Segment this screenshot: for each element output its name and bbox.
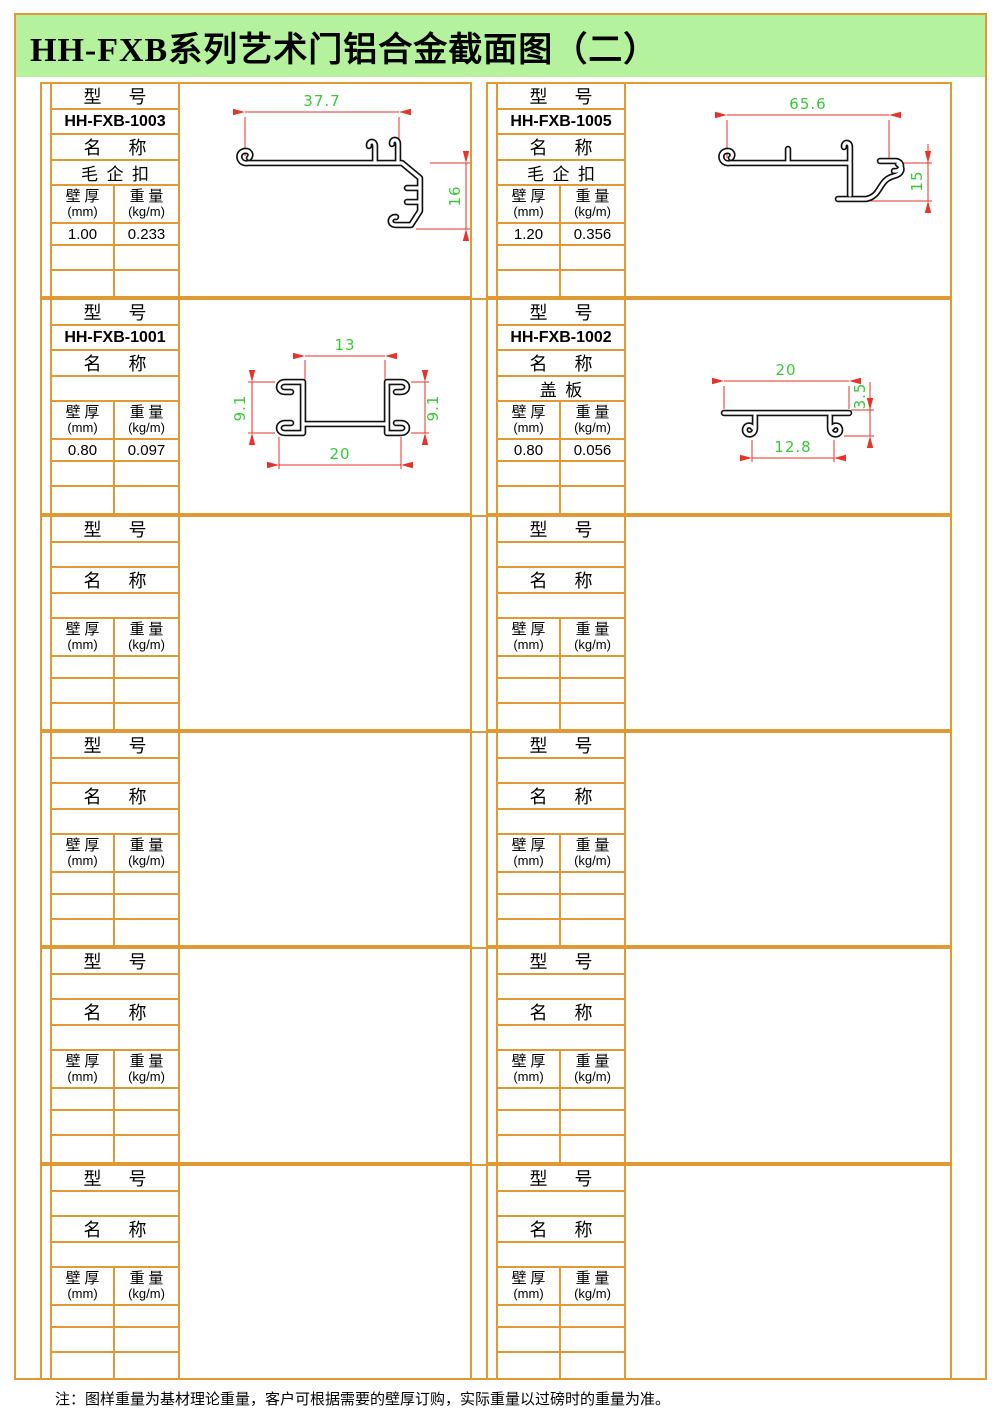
empty-row [498, 1111, 624, 1136]
values-row: 1.00 0.233 [52, 224, 178, 246]
units-header-row: 壁 厚(mm) 重 量(kg/m) [52, 1268, 178, 1306]
drawing-sheet: HH-FXB系列艺术门铝合金截面图（二） 型 号 HH-FXB-1003 名 称… [0, 0, 1000, 1415]
weight-header: 重 量(kg/m) [561, 402, 624, 438]
dim-width-label: 37.7 [303, 92, 340, 110]
weight-value [561, 1089, 624, 1109]
profile-cell-hh-fxb-1003: 型 号 HH-FXB-1003 名 称 毛 企 扣 壁 厚(mm) 重 量(kg… [40, 82, 472, 298]
values-row [498, 657, 624, 679]
weight-header: 重 量(kg/m) [115, 619, 178, 655]
spec-table: 型 号 名 称 壁 厚(mm) 重 量(kg/m) [50, 1166, 180, 1378]
thickness-value: 0.80 [52, 440, 115, 460]
dim-left-label: 9.1 [231, 395, 249, 422]
name-value [498, 1243, 624, 1268]
model-value: HH-FXB-1003 [52, 110, 178, 135]
profile-cell-empty: 型 号 名 称 壁 厚(mm) 重 量(kg/m) [486, 1164, 952, 1380]
name-label: 名 称 [52, 568, 178, 594]
thickness-header: 壁 厚(mm) [52, 1268, 115, 1304]
name-label: 名 称 [52, 784, 178, 810]
weight-value: 0.097 [115, 440, 178, 460]
values-row: 0.80 0.097 [52, 440, 178, 462]
thickness-header: 壁 厚(mm) [52, 402, 115, 438]
spec-table: 型 号 名 称 壁 厚(mm) 重 量(kg/m) [50, 733, 180, 945]
empty-row [52, 895, 178, 920]
thickness-header: 壁 厚(mm) [498, 835, 561, 871]
thickness-value: 0.80 [498, 440, 561, 460]
spec-table: 型 号 名 称 壁 厚(mm) 重 量(kg/m) [50, 949, 180, 1162]
spec-table: 型 号 HH-FXB-1003 名 称 毛 企 扣 壁 厚(mm) 重 量(kg… [50, 84, 180, 296]
model-label: 型 号 [52, 84, 178, 110]
name-value: 盖 板 [498, 377, 624, 402]
model-value [52, 543, 178, 568]
empty-row [52, 462, 178, 487]
profile-cell-empty: 型 号 名 称 壁 厚(mm) 重 量(kg/m) [486, 515, 952, 731]
empty-row [498, 679, 624, 704]
dim-height-label: 16 [446, 185, 464, 206]
dim-top-label: 20 [775, 361, 796, 379]
values-row [498, 873, 624, 895]
weight-header: 重 量(kg/m) [561, 835, 624, 871]
thickness-value [52, 873, 115, 893]
name-value [498, 594, 624, 619]
empty-row [52, 246, 178, 271]
dim-width-label: 65.6 [789, 95, 826, 113]
name-value: 毛 企 扣 [498, 161, 624, 186]
profile-cell-empty: 型 号 名 称 壁 厚(mm) 重 量(kg/m) [40, 947, 472, 1164]
empty-row [498, 462, 624, 487]
weight-value: 0.356 [561, 224, 624, 244]
empty-row [52, 487, 178, 513]
profile-drawing-hh-fxb-1003: 37.7 16 [182, 84, 472, 296]
empty-row [498, 246, 624, 271]
thickness-value [52, 1306, 115, 1326]
empty-row [52, 1136, 178, 1162]
name-label: 名 称 [498, 351, 624, 377]
thickness-header: 壁 厚(mm) [52, 619, 115, 655]
units-header-row: 壁 厚(mm) 重 量(kg/m) [498, 186, 624, 224]
values-row: 0.80 0.056 [498, 440, 624, 462]
empty-row [52, 920, 178, 945]
empty-row [52, 271, 178, 296]
model-value: HH-FXB-1005 [498, 110, 624, 135]
weight-header: 重 量(kg/m) [115, 1268, 178, 1304]
name-label: 名 称 [52, 1000, 178, 1026]
model-label: 型 号 [498, 517, 624, 543]
dim-bottom-label: 20 [329, 445, 350, 463]
weight-value: 0.056 [561, 440, 624, 460]
weight-header: 重 量(kg/m) [115, 186, 178, 222]
weight-header: 重 量(kg/m) [115, 1051, 178, 1087]
units-header-row: 壁 厚(mm) 重 量(kg/m) [498, 1051, 624, 1089]
units-header-row: 壁 厚(mm) 重 量(kg/m) [52, 402, 178, 440]
profile-cell-empty: 型 号 名 称 壁 厚(mm) 重 量(kg/m) [40, 1164, 472, 1380]
thickness-value: 1.00 [52, 224, 115, 244]
empty-row [498, 1353, 624, 1378]
thickness-header: 壁 厚(mm) [52, 1051, 115, 1087]
weight-value [561, 1306, 624, 1326]
profile-cell-hh-fxb-1001: 型 号 HH-FXB-1001 名 称 壁 厚(mm) 重 量(kg/m) 0.… [40, 298, 472, 515]
model-value: HH-FXB-1001 [52, 326, 178, 351]
model-value: HH-FXB-1002 [498, 326, 624, 351]
name-label: 名 称 [498, 1000, 624, 1026]
model-value [52, 975, 178, 1000]
name-value [52, 594, 178, 619]
weight-header: 重 量(kg/m) [115, 402, 178, 438]
model-label: 型 号 [498, 949, 624, 975]
name-value [52, 1026, 178, 1051]
empty-row [52, 1111, 178, 1136]
name-label: 名 称 [498, 135, 624, 161]
values-row: 1.20 0.356 [498, 224, 624, 246]
empty-row [52, 704, 178, 729]
thickness-header: 壁 厚(mm) [52, 835, 115, 871]
weight-value: 0.233 [115, 224, 178, 244]
name-value: 毛 企 扣 [52, 161, 178, 186]
thickness-value [498, 873, 561, 893]
profile-cell-hh-fxb-1005: 型 号 HH-FXB-1005 名 称 毛 企 扣 壁 厚(mm) 重 量(kg… [486, 82, 952, 298]
model-value [498, 975, 624, 1000]
weight-value [115, 1306, 178, 1326]
footnote: 注：图样重量为基材理论重量，客户可根据需要的壁厚订购，实际重量以过磅时的重量为准… [55, 1388, 670, 1409]
name-value [498, 1026, 624, 1051]
values-row [498, 1306, 624, 1328]
name-label: 名 称 [52, 1217, 178, 1243]
empty-row [498, 920, 624, 945]
profile-cell-empty: 型 号 名 称 壁 厚(mm) 重 量(kg/m) [486, 731, 952, 947]
name-value [498, 810, 624, 835]
empty-row [498, 895, 624, 920]
profile-drawing-hh-fxb-1002: 20 12.8 3.5 [628, 300, 952, 513]
weight-header: 重 量(kg/m) [561, 1051, 624, 1087]
profile-drawing-hh-fxb-1001: 13 20 9.1 9.1 [182, 300, 472, 513]
spec-table: 型 号 名 称 壁 厚(mm) 重 量(kg/m) [496, 1166, 626, 1378]
profile-cell-empty: 型 号 名 称 壁 厚(mm) 重 量(kg/m) [40, 515, 472, 731]
model-value [498, 543, 624, 568]
name-value [52, 810, 178, 835]
model-label: 型 号 [498, 1166, 624, 1192]
thickness-header: 壁 厚(mm) [498, 619, 561, 655]
model-label: 型 号 [52, 517, 178, 543]
empty-row [498, 704, 624, 729]
empty-row [52, 679, 178, 704]
model-value [52, 1192, 178, 1217]
units-header-row: 壁 厚(mm) 重 量(kg/m) [498, 1268, 624, 1306]
thickness-value [52, 657, 115, 677]
weight-value [561, 873, 624, 893]
dim-height-label: 15 [908, 170, 926, 191]
units-header-row: 壁 厚(mm) 重 量(kg/m) [52, 835, 178, 873]
spec-table: 型 号 名 称 壁 厚(mm) 重 量(kg/m) [496, 949, 626, 1162]
weight-value [561, 657, 624, 677]
spec-table: 型 号 HH-FXB-1005 名 称 毛 企 扣 壁 厚(mm) 重 量(kg… [496, 84, 626, 296]
name-value [52, 1243, 178, 1268]
name-label: 名 称 [498, 1217, 624, 1243]
name-label: 名 称 [498, 784, 624, 810]
spec-table: 型 号 HH-FXB-1002 名 称 盖 板 壁 厚(mm) 重 量(kg/m… [496, 300, 626, 513]
dim-right-label: 3.5 [851, 383, 869, 410]
weight-header: 重 量(kg/m) [115, 835, 178, 871]
units-header-row: 壁 厚(mm) 重 量(kg/m) [498, 619, 624, 657]
units-header-row: 壁 厚(mm) 重 量(kg/m) [498, 835, 624, 873]
values-row [52, 657, 178, 679]
empty-row [498, 1136, 624, 1162]
model-label: 型 号 [498, 84, 624, 110]
profile-cell-empty: 型 号 名 称 壁 厚(mm) 重 量(kg/m) [40, 731, 472, 947]
model-label: 型 号 [52, 300, 178, 326]
model-label: 型 号 [498, 733, 624, 759]
spec-table: 型 号 HH-FXB-1001 名 称 壁 厚(mm) 重 量(kg/m) 0.… [50, 300, 180, 513]
spec-table: 型 号 名 称 壁 厚(mm) 重 量(kg/m) [496, 517, 626, 729]
thickness-value [498, 1306, 561, 1326]
title-bar: HH-FXB系列艺术门铝合金截面图（二） [16, 15, 985, 77]
empty-row [52, 1328, 178, 1353]
empty-row [498, 1328, 624, 1353]
name-label: 名 称 [498, 568, 624, 594]
values-row [498, 1089, 624, 1111]
weight-header: 重 量(kg/m) [561, 1268, 624, 1304]
dim-bottom-label: 12.8 [774, 438, 811, 456]
dim-right-label: 9.1 [424, 395, 442, 422]
profile-cell-empty: 型 号 名 称 壁 厚(mm) 重 量(kg/m) [486, 947, 952, 1164]
units-header-row: 壁 厚(mm) 重 量(kg/m) [498, 402, 624, 440]
thickness-header: 壁 厚(mm) [498, 402, 561, 438]
thickness-header: 壁 厚(mm) [52, 186, 115, 222]
thickness-value: 1.20 [498, 224, 561, 244]
units-header-row: 壁 厚(mm) 重 量(kg/m) [52, 1051, 178, 1089]
thickness-header: 壁 厚(mm) [498, 1268, 561, 1304]
empty-row [498, 487, 624, 513]
thickness-value [52, 1089, 115, 1109]
model-label: 型 号 [52, 949, 178, 975]
thickness-value [498, 1089, 561, 1109]
name-label: 名 称 [52, 351, 178, 377]
empty-row [52, 1353, 178, 1378]
model-label: 型 号 [52, 1166, 178, 1192]
model-value [498, 1192, 624, 1217]
name-value [52, 377, 178, 402]
name-label: 名 称 [52, 135, 178, 161]
weight-value [115, 657, 178, 677]
thickness-header: 壁 厚(mm) [498, 1051, 561, 1087]
model-label: 型 号 [498, 300, 624, 326]
values-row [52, 1089, 178, 1111]
model-label: 型 号 [52, 733, 178, 759]
units-header-row: 壁 厚(mm) 重 量(kg/m) [52, 186, 178, 224]
spec-table: 型 号 名 称 壁 厚(mm) 重 量(kg/m) [496, 733, 626, 945]
thickness-value [498, 657, 561, 677]
model-value [52, 759, 178, 784]
profile-cell-hh-fxb-1002: 型 号 HH-FXB-1002 名 称 盖 板 壁 厚(mm) 重 量(kg/m… [486, 298, 952, 515]
profile-drawing-hh-fxb-1005: 65.6 15 [628, 84, 952, 296]
thickness-header: 壁 厚(mm) [498, 186, 561, 222]
weight-header: 重 量(kg/m) [561, 619, 624, 655]
dim-top-label: 13 [334, 336, 355, 354]
page-title: HH-FXB系列艺术门铝合金截面图（二） [16, 22, 658, 71]
weight-header: 重 量(kg/m) [561, 186, 624, 222]
values-row [52, 873, 178, 895]
units-header-row: 壁 厚(mm) 重 量(kg/m) [52, 619, 178, 657]
empty-row [498, 271, 624, 296]
values-row [52, 1306, 178, 1328]
spec-table: 型 号 名 称 壁 厚(mm) 重 量(kg/m) [50, 517, 180, 729]
weight-value [115, 1089, 178, 1109]
weight-value [115, 873, 178, 893]
model-value [498, 759, 624, 784]
